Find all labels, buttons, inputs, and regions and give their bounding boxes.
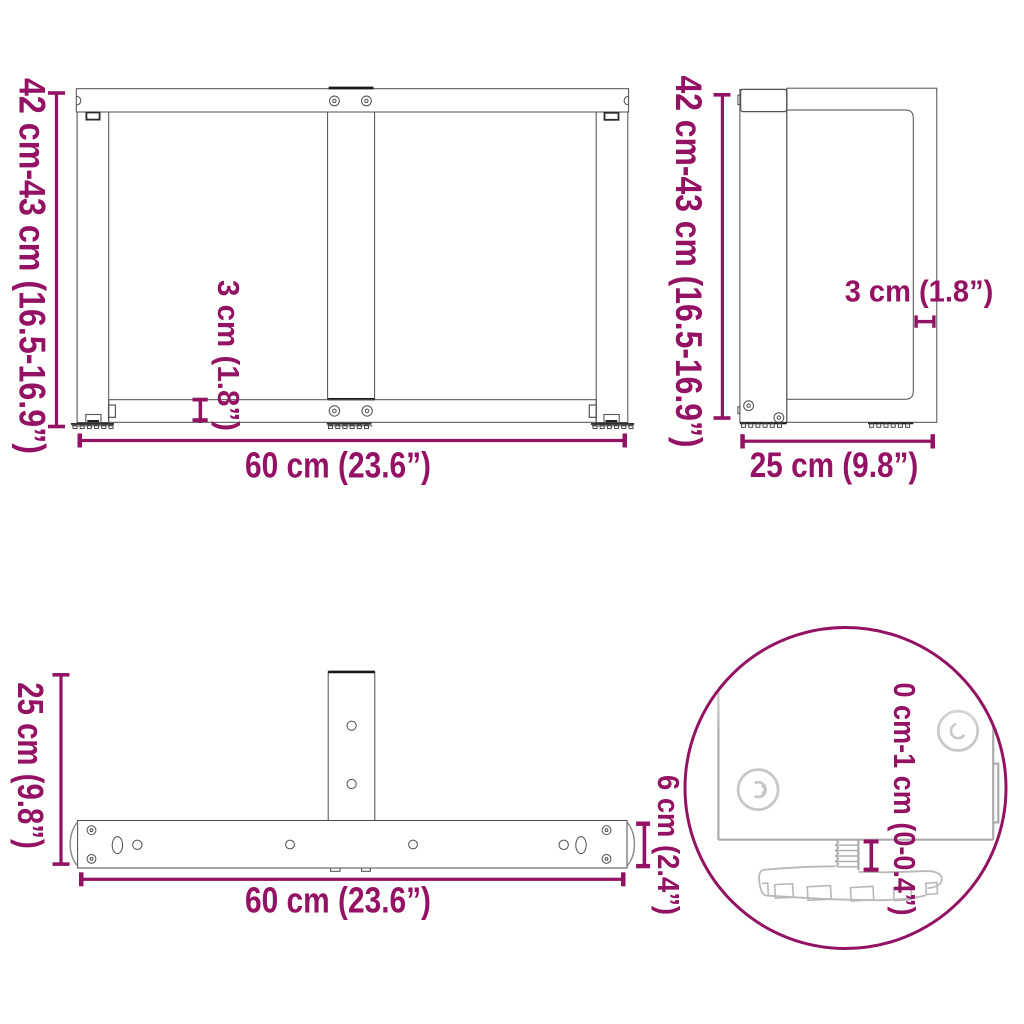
- svg-text:42 cm-43 cm (16.5-16.9”): 42 cm-43 cm (16.5-16.9”): [12, 78, 53, 454]
- svg-text:60 cm (23.6”): 60 cm (23.6”): [245, 445, 431, 486]
- svg-text:6 cm (2.4”): 6 cm (2.4”): [651, 775, 686, 915]
- svg-text:25 cm (9.8”): 25 cm (9.8”): [750, 445, 919, 485]
- svg-text:3 cm (1.8”): 3 cm (1.8”): [845, 273, 994, 308]
- svg-text:0 cm-1 cm (0-0.4”): 0 cm-1 cm (0-0.4”): [887, 683, 922, 916]
- svg-text:42 cm-43 cm (16.5-16.9”): 42 cm-43 cm (16.5-16.9”): [668, 76, 709, 448]
- svg-text:60 cm (23.6”): 60 cm (23.6”): [245, 880, 431, 921]
- svg-text:3 cm (1.8”): 3 cm (1.8”): [211, 280, 246, 431]
- svg-text:25 cm (9.8”): 25 cm (9.8”): [10, 682, 51, 849]
